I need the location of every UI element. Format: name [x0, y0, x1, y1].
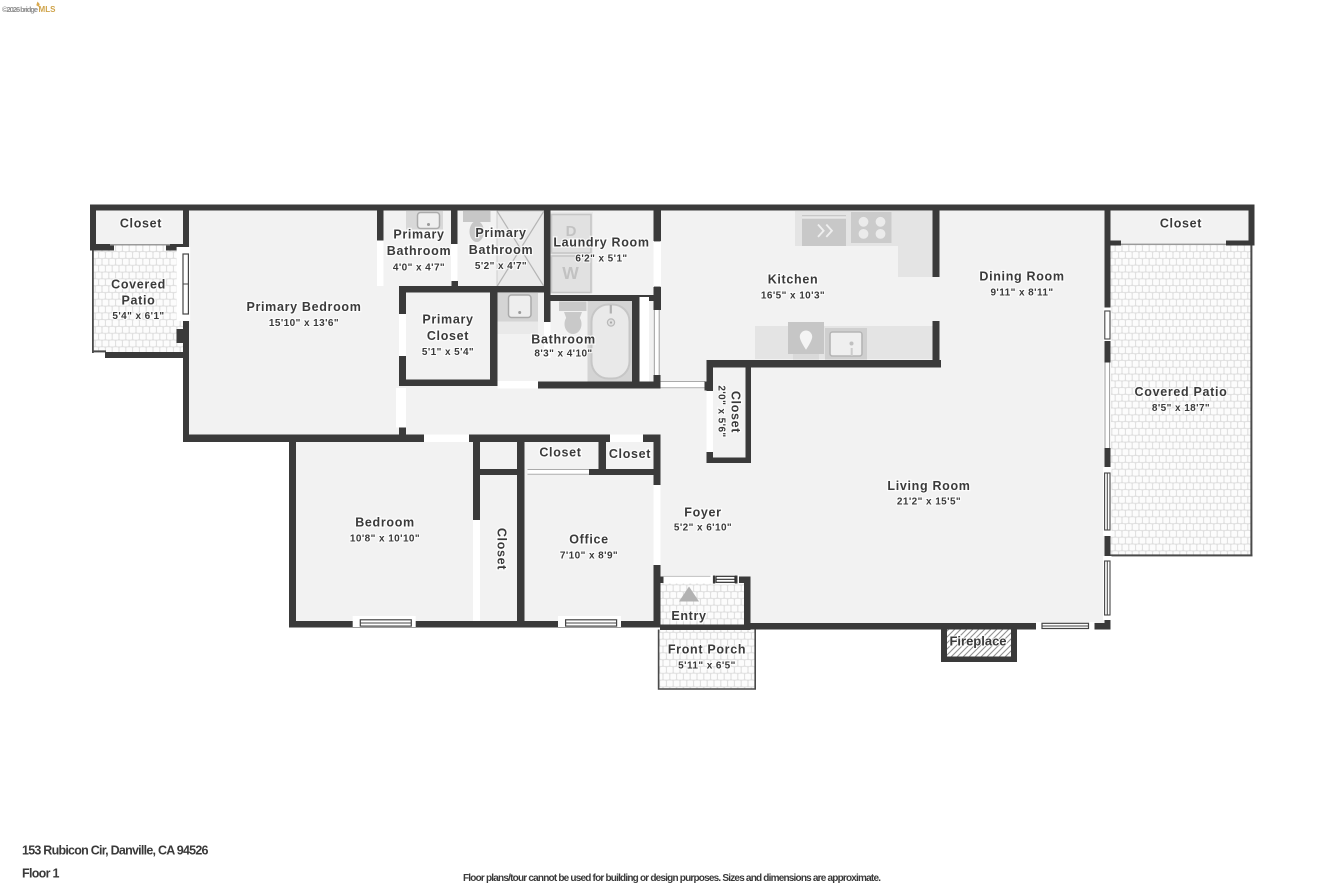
svg-text:©2026 bridge: ©2026 bridge — [2, 5, 38, 14]
svg-text:5'11" x 6'5": 5'11" x 6'5" — [678, 661, 736, 672]
svg-text:21'2" x 15'5": 21'2" x 15'5" — [897, 497, 961, 508]
svg-text:16'5" x 10'3": 16'5" x 10'3" — [761, 291, 825, 302]
svg-text:8'3" x 4'10": 8'3" x 4'10" — [534, 349, 592, 360]
svg-text:Bathroom: Bathroom — [387, 244, 451, 258]
svg-text:Bathroom: Bathroom — [469, 243, 533, 257]
svg-text:Primary: Primary — [422, 313, 473, 327]
svg-text:Floor plans/tour cannot be use: Floor plans/tour cannot be used for buil… — [463, 873, 881, 884]
svg-text:153 Rubicon Cir, Danville, CA: 153 Rubicon Cir, Danville, CA 94526 — [22, 844, 209, 858]
svg-text:4'0" x 4'7": 4'0" x 4'7" — [393, 263, 445, 274]
svg-text:Foyer: Foyer — [684, 506, 721, 520]
svg-text:Closet: Closet — [120, 217, 162, 231]
svg-text:10'8" x 10'10": 10'8" x 10'10" — [350, 534, 420, 545]
svg-text:Dining Room: Dining Room — [979, 270, 1064, 284]
svg-text:2'0" x 5'6": 2'0" x 5'6" — [716, 385, 727, 437]
svg-text:Closet: Closet — [539, 446, 581, 460]
svg-text:Covered: Covered — [111, 278, 166, 292]
svg-text:Primary Bedroom: Primary Bedroom — [246, 300, 361, 314]
svg-text:8'5" x 18'7": 8'5" x 18'7" — [1152, 403, 1210, 414]
svg-text:Kitchen: Kitchen — [768, 273, 819, 287]
svg-text:Primary: Primary — [475, 226, 526, 240]
svg-text:Office: Office — [569, 533, 609, 547]
svg-text:9'11" x 8'11": 9'11" x 8'11" — [990, 288, 1053, 299]
svg-text:Closet: Closet — [609, 447, 651, 461]
svg-text:Bathroom: Bathroom — [531, 333, 595, 347]
svg-text:7'10" x 8'9": 7'10" x 8'9" — [560, 551, 618, 562]
svg-text:5'4" x 6'1": 5'4" x 6'1" — [112, 311, 164, 322]
svg-text:Closet: Closet — [495, 528, 509, 570]
svg-text:Closet: Closet — [427, 329, 469, 343]
svg-text:Entry: Entry — [671, 609, 706, 623]
svg-text:Closet: Closet — [729, 391, 743, 433]
svg-text:Front Porch: Front Porch — [668, 643, 746, 657]
svg-text:Bedroom: Bedroom — [355, 516, 415, 530]
svg-text:Covered Patio: Covered Patio — [1135, 385, 1228, 399]
svg-text:Fireplace: Fireplace — [949, 634, 1006, 649]
svg-text:W: W — [562, 263, 579, 283]
svg-text:15'10" x 13'6": 15'10" x 13'6" — [269, 318, 339, 329]
svg-text:Living Room: Living Room — [887, 479, 970, 493]
svg-text:Laundry Room: Laundry Room — [553, 236, 649, 250]
svg-text:Primary: Primary — [393, 228, 444, 242]
svg-text:5'2" x 6'10": 5'2" x 6'10" — [674, 523, 732, 534]
svg-text:Closet: Closet — [1160, 217, 1202, 231]
svg-text:MLS: MLS — [39, 5, 57, 14]
svg-text:Patio: Patio — [122, 294, 156, 308]
svg-text:5'1" x 5'4": 5'1" x 5'4" — [422, 347, 474, 358]
svg-text:5'2" x 4'7": 5'2" x 4'7" — [475, 261, 527, 272]
svg-text:Floor 1: Floor 1 — [22, 867, 60, 881]
svg-text:6'2" x 5'1": 6'2" x 5'1" — [575, 254, 627, 265]
